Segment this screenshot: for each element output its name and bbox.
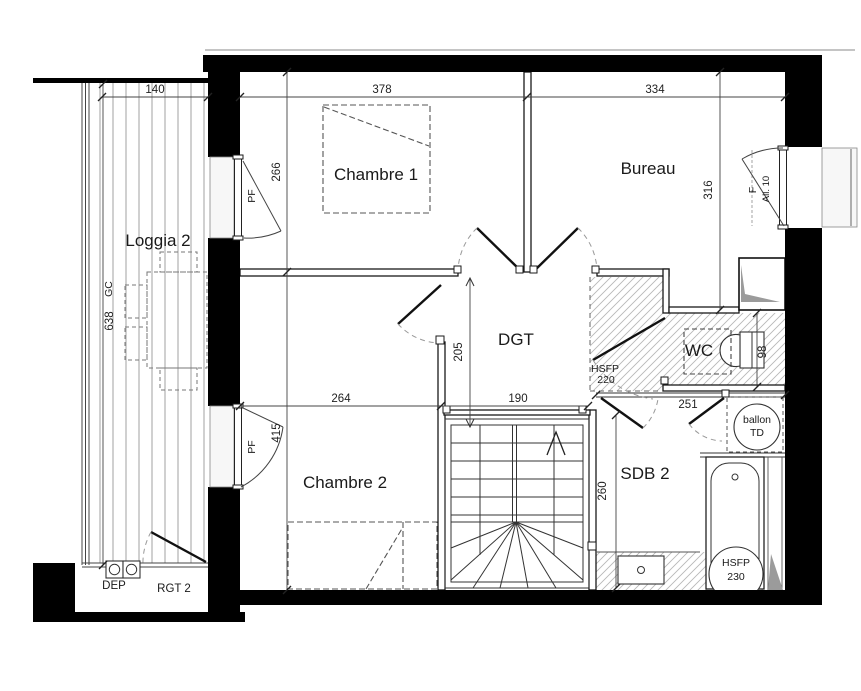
dim-bureau-height: 316 <box>703 180 715 199</box>
label-pf-bottom: PF <box>246 440 258 453</box>
dim-chambre1-width: 378 <box>372 84 391 96</box>
dim-stair-width: 190 <box>508 393 527 405</box>
dim-bureau-width: 334 <box>645 84 665 96</box>
label-pf-top: PF <box>246 189 258 202</box>
label-gc: GC <box>103 281 115 297</box>
label-dep: DEP <box>102 580 126 592</box>
dim-chambre2-width: 264 <box>331 393 351 405</box>
room-label-sdb2: SDB 2 <box>620 464 669 483</box>
room-label-bureau: Bureau <box>621 159 676 178</box>
room-label-chambre1: Chambre 1 <box>334 165 418 184</box>
label-ballon-2: TD <box>750 427 764 439</box>
dim-sdb-top-width: 251 <box>678 399 697 411</box>
room-label-chambre2: Chambre 2 <box>303 473 387 492</box>
room-label-dgt: DGT <box>498 330 534 349</box>
room-label-rgt2: RGT 2 <box>157 583 191 595</box>
label-window-allege: All. 10 <box>761 176 772 202</box>
room-label-wc: WC <box>685 341 713 360</box>
dim-wc-height: 98 <box>757 346 769 359</box>
label-hsfp220-2: 220 <box>597 374 615 386</box>
dim-loggia-width: 140 <box>145 84 164 96</box>
dim-loggia-height: 638 <box>104 311 116 330</box>
label-window-f: F <box>747 187 759 193</box>
label-ballon-1: ballon <box>743 414 771 426</box>
label-hsfp230-2: 230 <box>727 571 745 583</box>
dim-chambre1-height: 266 <box>271 162 283 181</box>
duct-bureau <box>739 258 785 310</box>
dim-dgt-height: 205 <box>453 342 465 361</box>
dep-appliances <box>106 561 140 578</box>
label-hsfp230-1: HSFP <box>722 557 750 569</box>
floor-plan: Loggia 2 Chambre 1 Bureau DGT WC Chambre… <box>0 0 861 691</box>
dim-chambre2-height: 415 <box>271 423 283 442</box>
room-label-loggia2: Loggia 2 <box>125 231 190 250</box>
dim-sdb2-height: 260 <box>597 481 609 500</box>
